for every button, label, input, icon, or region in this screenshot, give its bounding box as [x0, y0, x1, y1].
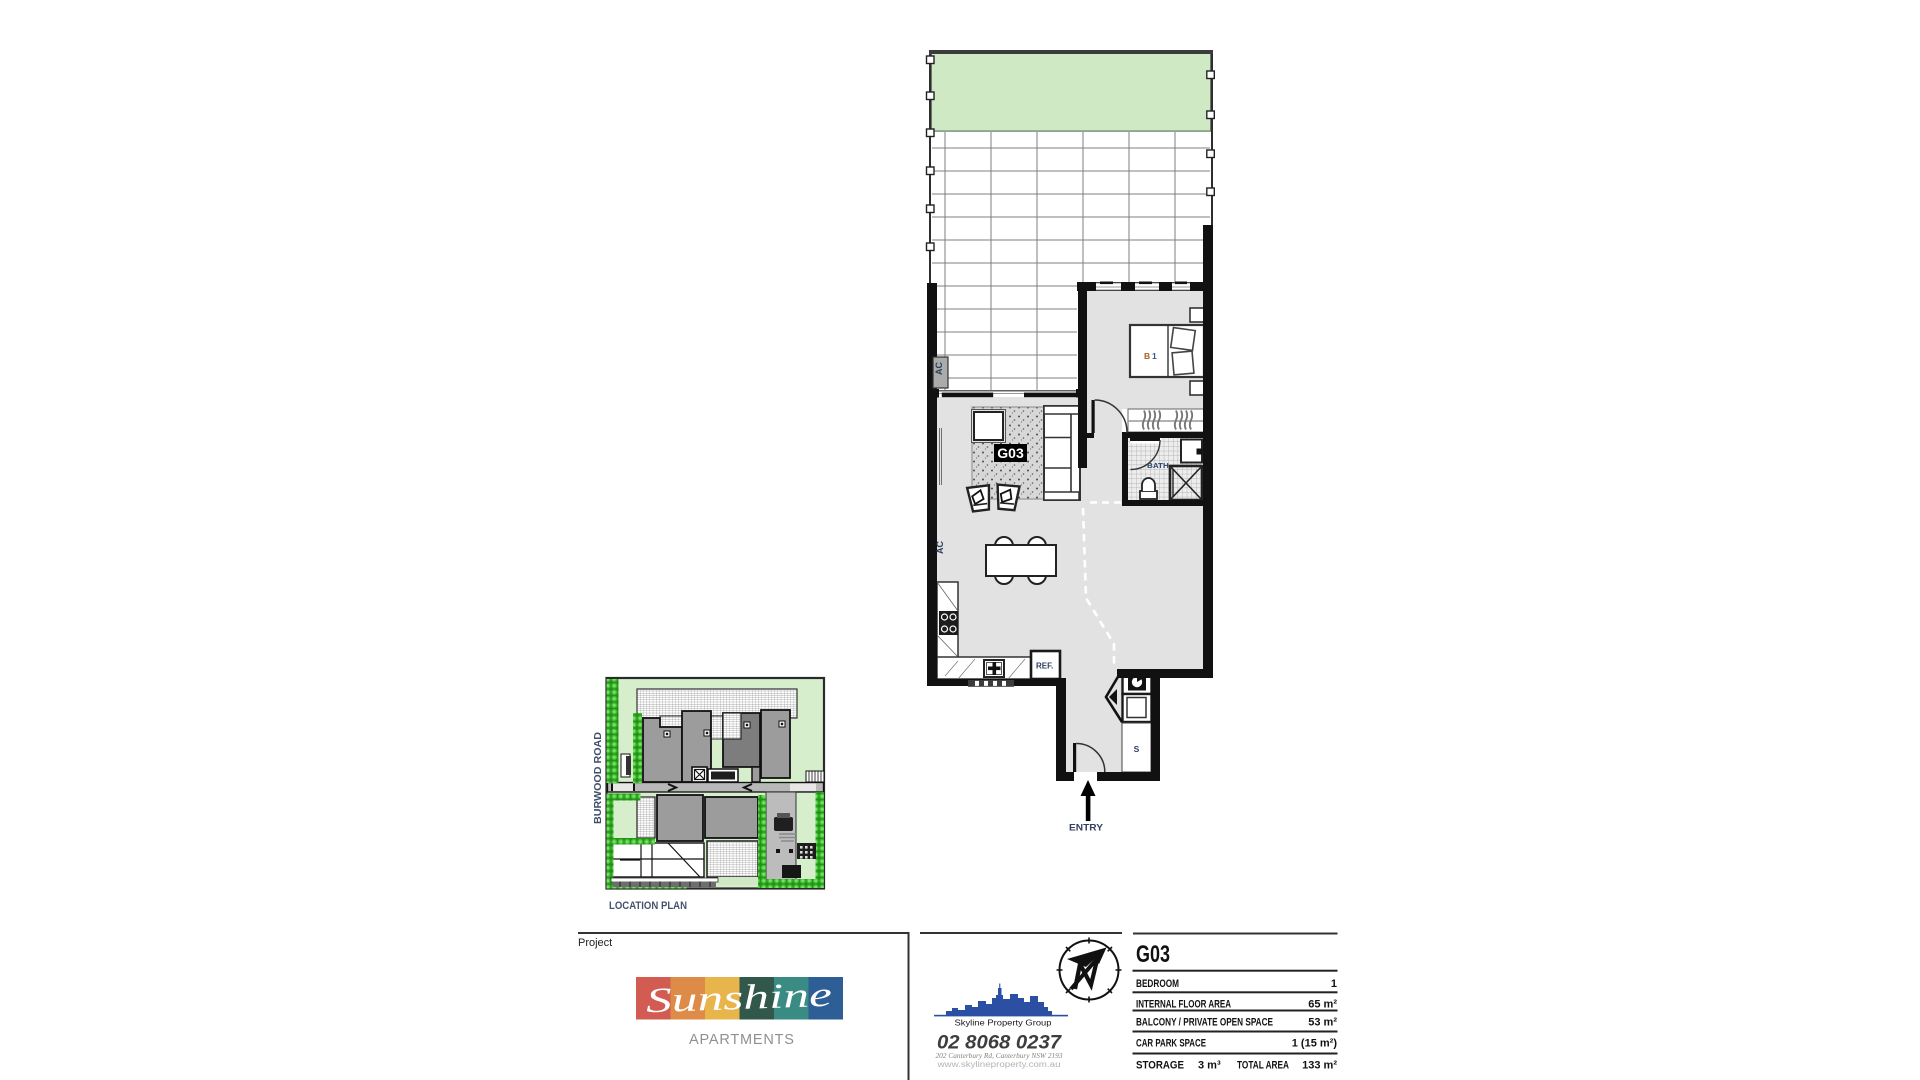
svg-text:LOCATION PLAN: LOCATION PLAN — [609, 900, 687, 912]
svg-text:65 m²: 65 m² — [1308, 999, 1337, 1011]
svg-text:CAR PARK SPACE: CAR PARK SPACE — [1136, 1038, 1206, 1050]
svg-text:AC: AC — [935, 541, 945, 554]
svg-text:Project: Project — [578, 937, 612, 949]
svg-text:REF.: REF. — [1036, 662, 1053, 671]
svg-text:INTERNAL FLOOR AREA: INTERNAL FLOOR AREA — [1136, 999, 1231, 1011]
svg-text:1: 1 — [1331, 978, 1337, 990]
svg-text:STORAGE: STORAGE — [1136, 1060, 1184, 1072]
svg-text:1: 1 — [1152, 351, 1157, 361]
svg-text:B: B — [1144, 351, 1150, 361]
svg-text:BURWOOD ROAD: BURWOOD ROAD — [592, 732, 604, 824]
svg-text:Sunshine: Sunshine — [645, 975, 832, 1020]
svg-text:AC: AC — [934, 362, 944, 375]
svg-text:Skyline Property Group: Skyline Property Group — [955, 1019, 1053, 1028]
svg-text:133 m²: 133 m² — [1302, 1060, 1337, 1072]
svg-text:www.skylineproperty.com.au: www.skylineproperty.com.au — [936, 1060, 1060, 1069]
svg-text:G03: G03 — [1136, 941, 1170, 968]
svg-text:BEDROOM: BEDROOM — [1136, 978, 1179, 990]
svg-text:BALCONY / PRIVATE OPEN SPACE: BALCONY / PRIVATE OPEN SPACE — [1136, 1017, 1273, 1029]
svg-text:S: S — [1134, 744, 1140, 754]
svg-text:53 m²: 53 m² — [1308, 1017, 1337, 1029]
svg-text:APARTMENTS: APARTMENTS — [689, 1032, 795, 1048]
svg-text:G03: G03 — [997, 445, 1024, 461]
svg-text:3 m³: 3 m³ — [1198, 1060, 1221, 1072]
svg-text:1 (15 m²): 1 (15 m²) — [1292, 1038, 1338, 1050]
svg-text:TOTAL AREA: TOTAL AREA — [1237, 1060, 1289, 1072]
svg-text:ENTRY: ENTRY — [1069, 823, 1104, 834]
svg-text:202 Canterbury Rd, Canterbury: 202 Canterbury Rd, Canterbury NSW 2193 — [936, 1051, 1063, 1060]
